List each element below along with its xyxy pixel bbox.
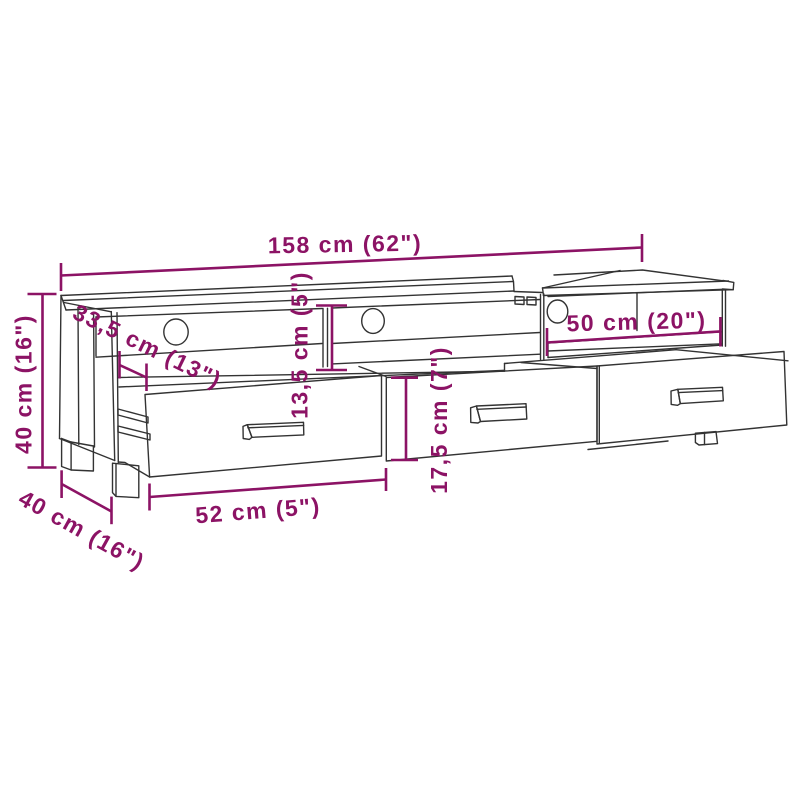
svg-text:13,5 cm (5"): 13,5 cm (5"): [287, 271, 313, 419]
svg-text:158 cm (62"): 158 cm (62"): [268, 230, 423, 259]
svg-text:40 cm (16"): 40 cm (16"): [11, 314, 37, 454]
svg-text:50 cm (20"): 50 cm (20"): [566, 307, 707, 337]
svg-text:17,5 cm (7"): 17,5 cm (7"): [426, 346, 452, 494]
